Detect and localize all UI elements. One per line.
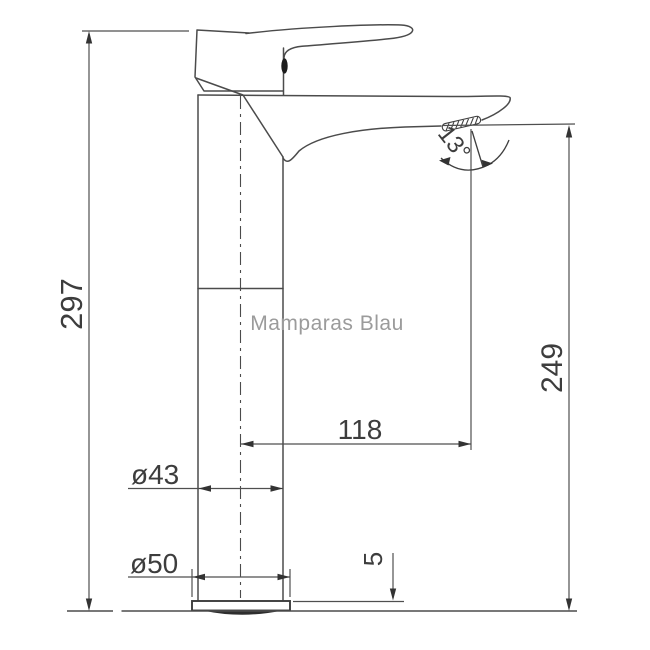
arrowhead-left: [199, 485, 212, 491]
technical-drawing-page: 297 249 118 ø43 ø50 5: [0, 0, 650, 650]
dim-spout-reach-118: [241, 129, 471, 450]
dim-total-height-297: [82, 31, 189, 611]
arrowhead-left: [241, 441, 254, 447]
arrowhead-up: [566, 125, 572, 138]
handle-head: [195, 30, 284, 95]
lever: [246, 25, 413, 59]
watermark: Mamparas Blau: [250, 312, 404, 335]
dim-label-249: 249: [536, 343, 569, 393]
dim-label-297: 297: [54, 278, 89, 330]
arrowhead-down: [86, 599, 92, 612]
screw-cover: [281, 58, 287, 73]
arrowhead-arc-right: [482, 160, 494, 168]
base-plate-rect: [192, 601, 290, 611]
cone-edge: [196, 78, 283, 157]
arrowhead-down: [390, 589, 396, 601]
dim-label-5: 5: [358, 552, 388, 566]
faucet-dimension-drawing: 297 249 118 ø43 ø50 5: [0, 0, 650, 650]
dim-label-43: ø43: [131, 459, 179, 490]
arrowhead-up: [86, 31, 92, 44]
dim-label-13deg: 13°: [432, 121, 476, 166]
dim-label-50: ø50: [130, 548, 178, 579]
arrowhead-right: [459, 441, 472, 447]
dim-label-118: 118: [338, 414, 383, 445]
spout-underside: [283, 126, 441, 161]
arrowhead-right: [271, 485, 284, 491]
arrowhead-down: [566, 599, 572, 612]
base-plate: [192, 601, 290, 615]
